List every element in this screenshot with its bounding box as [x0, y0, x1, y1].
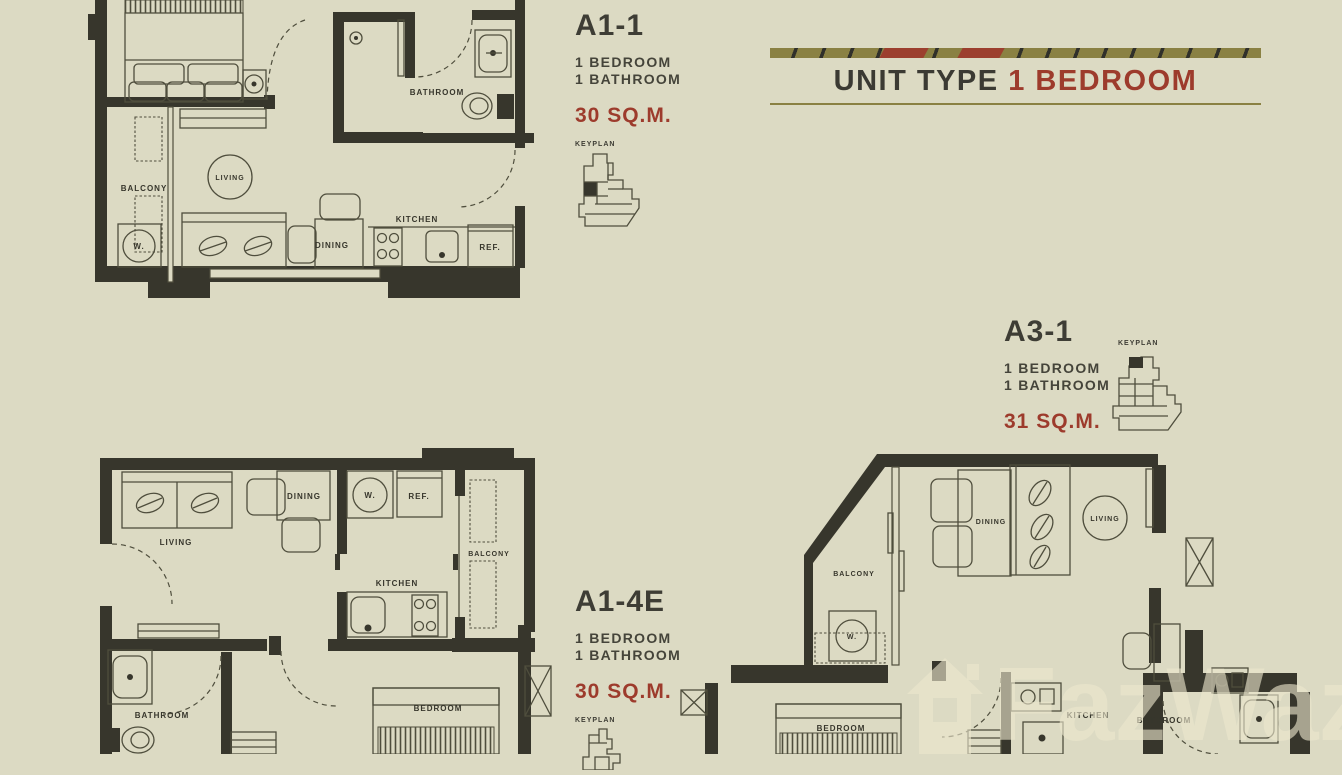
bathroom-sink — [108, 650, 152, 704]
shower — [350, 20, 404, 76]
room-label-living: LIVING — [160, 538, 193, 547]
unit-details: 1 BEDROOM 1 BATHROOM — [575, 54, 705, 88]
room-label-balcony: BALCONY — [833, 571, 875, 578]
room-label-dining: DINING — [287, 492, 321, 501]
floorplan-a3-1: BALCONY W. DINING LIVING BEDROOM KITCHEN… — [680, 443, 1315, 754]
room-label-balcony: BALCONY — [468, 551, 510, 558]
balcony-partition — [168, 107, 173, 282]
keyplan-label: KEYPLAN — [1118, 340, 1158, 347]
room-label-bathroom: BATHROOM — [135, 711, 190, 720]
room-label-washer: W. — [364, 491, 375, 500]
unit-area: 30 SQ.M. — [575, 104, 705, 128]
page-title: UNIT TYPE 1 BEDROOM — [770, 65, 1261, 98]
unit-code: A1-1 — [575, 8, 705, 44]
unit-bedrooms: 1 BEDROOM — [575, 54, 705, 71]
kitchen-counter — [347, 592, 447, 637]
page-title-accent: 1 BEDROOM — [1008, 65, 1197, 97]
keyplan-label: KEYPLAN — [575, 141, 705, 148]
page-title-prefix: UNIT TYPE — [834, 65, 999, 97]
room-label-living: LIVING — [215, 175, 244, 182]
header-rule — [770, 103, 1261, 105]
floorplan-a1-4e: LIVING DINING W. REF. BALCONY KITCHEN BA… — [88, 440, 552, 754]
unit-code: A3-1 — [1004, 314, 1124, 350]
room-label-balcony: BALCONY — [121, 184, 168, 193]
room-label-living: LIVING — [1090, 516, 1119, 523]
room-label-kitchen: KITCHEN — [376, 579, 419, 588]
wardrobe — [180, 109, 266, 128]
dining-set — [288, 194, 363, 268]
keyplan-a3-1 — [1105, 350, 1187, 432]
room-label-bedroom: BEDROOM — [414, 704, 463, 713]
room-label-washer: W. — [133, 242, 144, 251]
bathroom-sink — [1240, 695, 1278, 743]
sliding-door — [1146, 469, 1153, 527]
kitchen-counter — [968, 683, 1063, 754]
room-label-washer: W. — [847, 634, 857, 641]
toilet — [108, 727, 154, 753]
room-label-bedroom: BEDROOM — [817, 724, 866, 733]
walls — [88, 0, 534, 298]
room-label-dining: DINING — [315, 241, 349, 250]
keyplan-a1-4e — [575, 727, 645, 770]
band-red-segment — [957, 48, 1004, 58]
bathroom-sink — [475, 30, 511, 77]
wardrobe — [138, 624, 219, 638]
floorplan-a1-1: BALCONY W. LIVING DINING KITCHEN REF. BA… — [88, 0, 534, 300]
room-label-ref: REF. — [479, 243, 500, 252]
toilet — [462, 93, 514, 119]
decorative-band — [770, 48, 1261, 58]
ac-ledge-left — [681, 690, 707, 715]
room-label-dining: DINING — [976, 519, 1007, 526]
dining-set — [247, 471, 330, 552]
room-label-bathroom: BATHROOM — [1137, 716, 1192, 725]
unit-info-a1-1: A1-1 1 BEDROOM 1 BATHROOM 30 SQ.M. KEYPL… — [575, 8, 705, 235]
sofa — [1010, 465, 1070, 575]
bed — [373, 688, 499, 754]
bedside-table — [243, 70, 266, 99]
sofa — [122, 472, 232, 528]
band-red-segment — [879, 48, 928, 58]
walls — [705, 454, 1310, 754]
room-label-bathroom: BATHROOM — [410, 88, 465, 97]
floorplan-sheet: { "header": { "prefix": "UNIT TYPE", "ac… — [0, 0, 1342, 754]
room-label-kitchen: KITCHEN — [1067, 711, 1110, 720]
balcony-partition — [888, 467, 904, 665]
unit-bathrooms: 1 BATHROOM — [575, 71, 705, 88]
page-header: UNIT TYPE 1 BEDROOM — [770, 48, 1261, 105]
sofa — [182, 213, 286, 267]
bed — [125, 0, 243, 102]
ac-ledge — [1186, 538, 1213, 586]
cabinet — [231, 732, 276, 754]
room-label-ref: REF. — [408, 492, 429, 501]
keyplan-a1-1 — [575, 152, 641, 230]
room-label-kitchen: KITCHEN — [396, 215, 439, 224]
